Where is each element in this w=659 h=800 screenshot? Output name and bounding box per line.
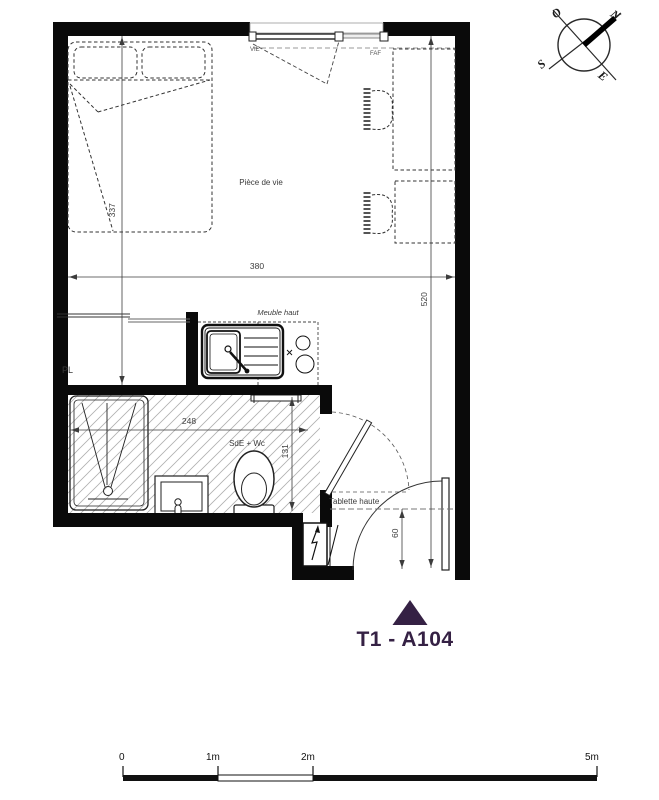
- electrical-panel-icon: [303, 523, 338, 566]
- bathroom-label: SdE + Wc: [207, 440, 287, 448]
- window-label-faf: FAF: [370, 51, 381, 57]
- kitchen-sink-icon: [202, 325, 283, 378]
- desk-icon: [393, 49, 455, 243]
- chair-icon: [367, 88, 392, 236]
- dim-bathroom-width: 248: [169, 417, 209, 426]
- closet-rails: [57, 314, 190, 322]
- upper-cabinet-label: Meuble haut: [238, 309, 318, 317]
- window-label-vie: VIE: [250, 47, 260, 53]
- scale-label-0: 0: [119, 753, 125, 763]
- scale-bar: [123, 766, 597, 781]
- living-room-label: Pièce de vie: [211, 179, 311, 187]
- washbasin-icon: [155, 476, 208, 519]
- bed-icon: [68, 42, 212, 232]
- bathroom-door-icon: [325, 412, 409, 496]
- hotplates-icon: [287, 336, 314, 373]
- dim-bed-wall: 337: [108, 195, 117, 225]
- unit-title: T1 - A104: [345, 628, 465, 652]
- dim-living-width: 380: [237, 262, 277, 271]
- floor-plan-drawing: [0, 0, 659, 800]
- scale-label-2m: 2m: [301, 753, 315, 763]
- dim-overall-depth: 520: [420, 284, 429, 314]
- high-shelf-label: Tablette haute: [329, 498, 379, 506]
- closet-label: PL: [62, 366, 73, 375]
- dim-entry-clearance: 60: [391, 521, 400, 545]
- scale-label-1m: 1m: [206, 753, 220, 763]
- north-triangle-marker: [393, 600, 428, 625]
- dim-bathroom-depth: 131: [281, 436, 290, 466]
- scale-label-5m: 5m: [585, 753, 599, 763]
- floor-plan-page: Pièce de vie SdE + Wc PL Meuble haut Tab…: [0, 0, 659, 800]
